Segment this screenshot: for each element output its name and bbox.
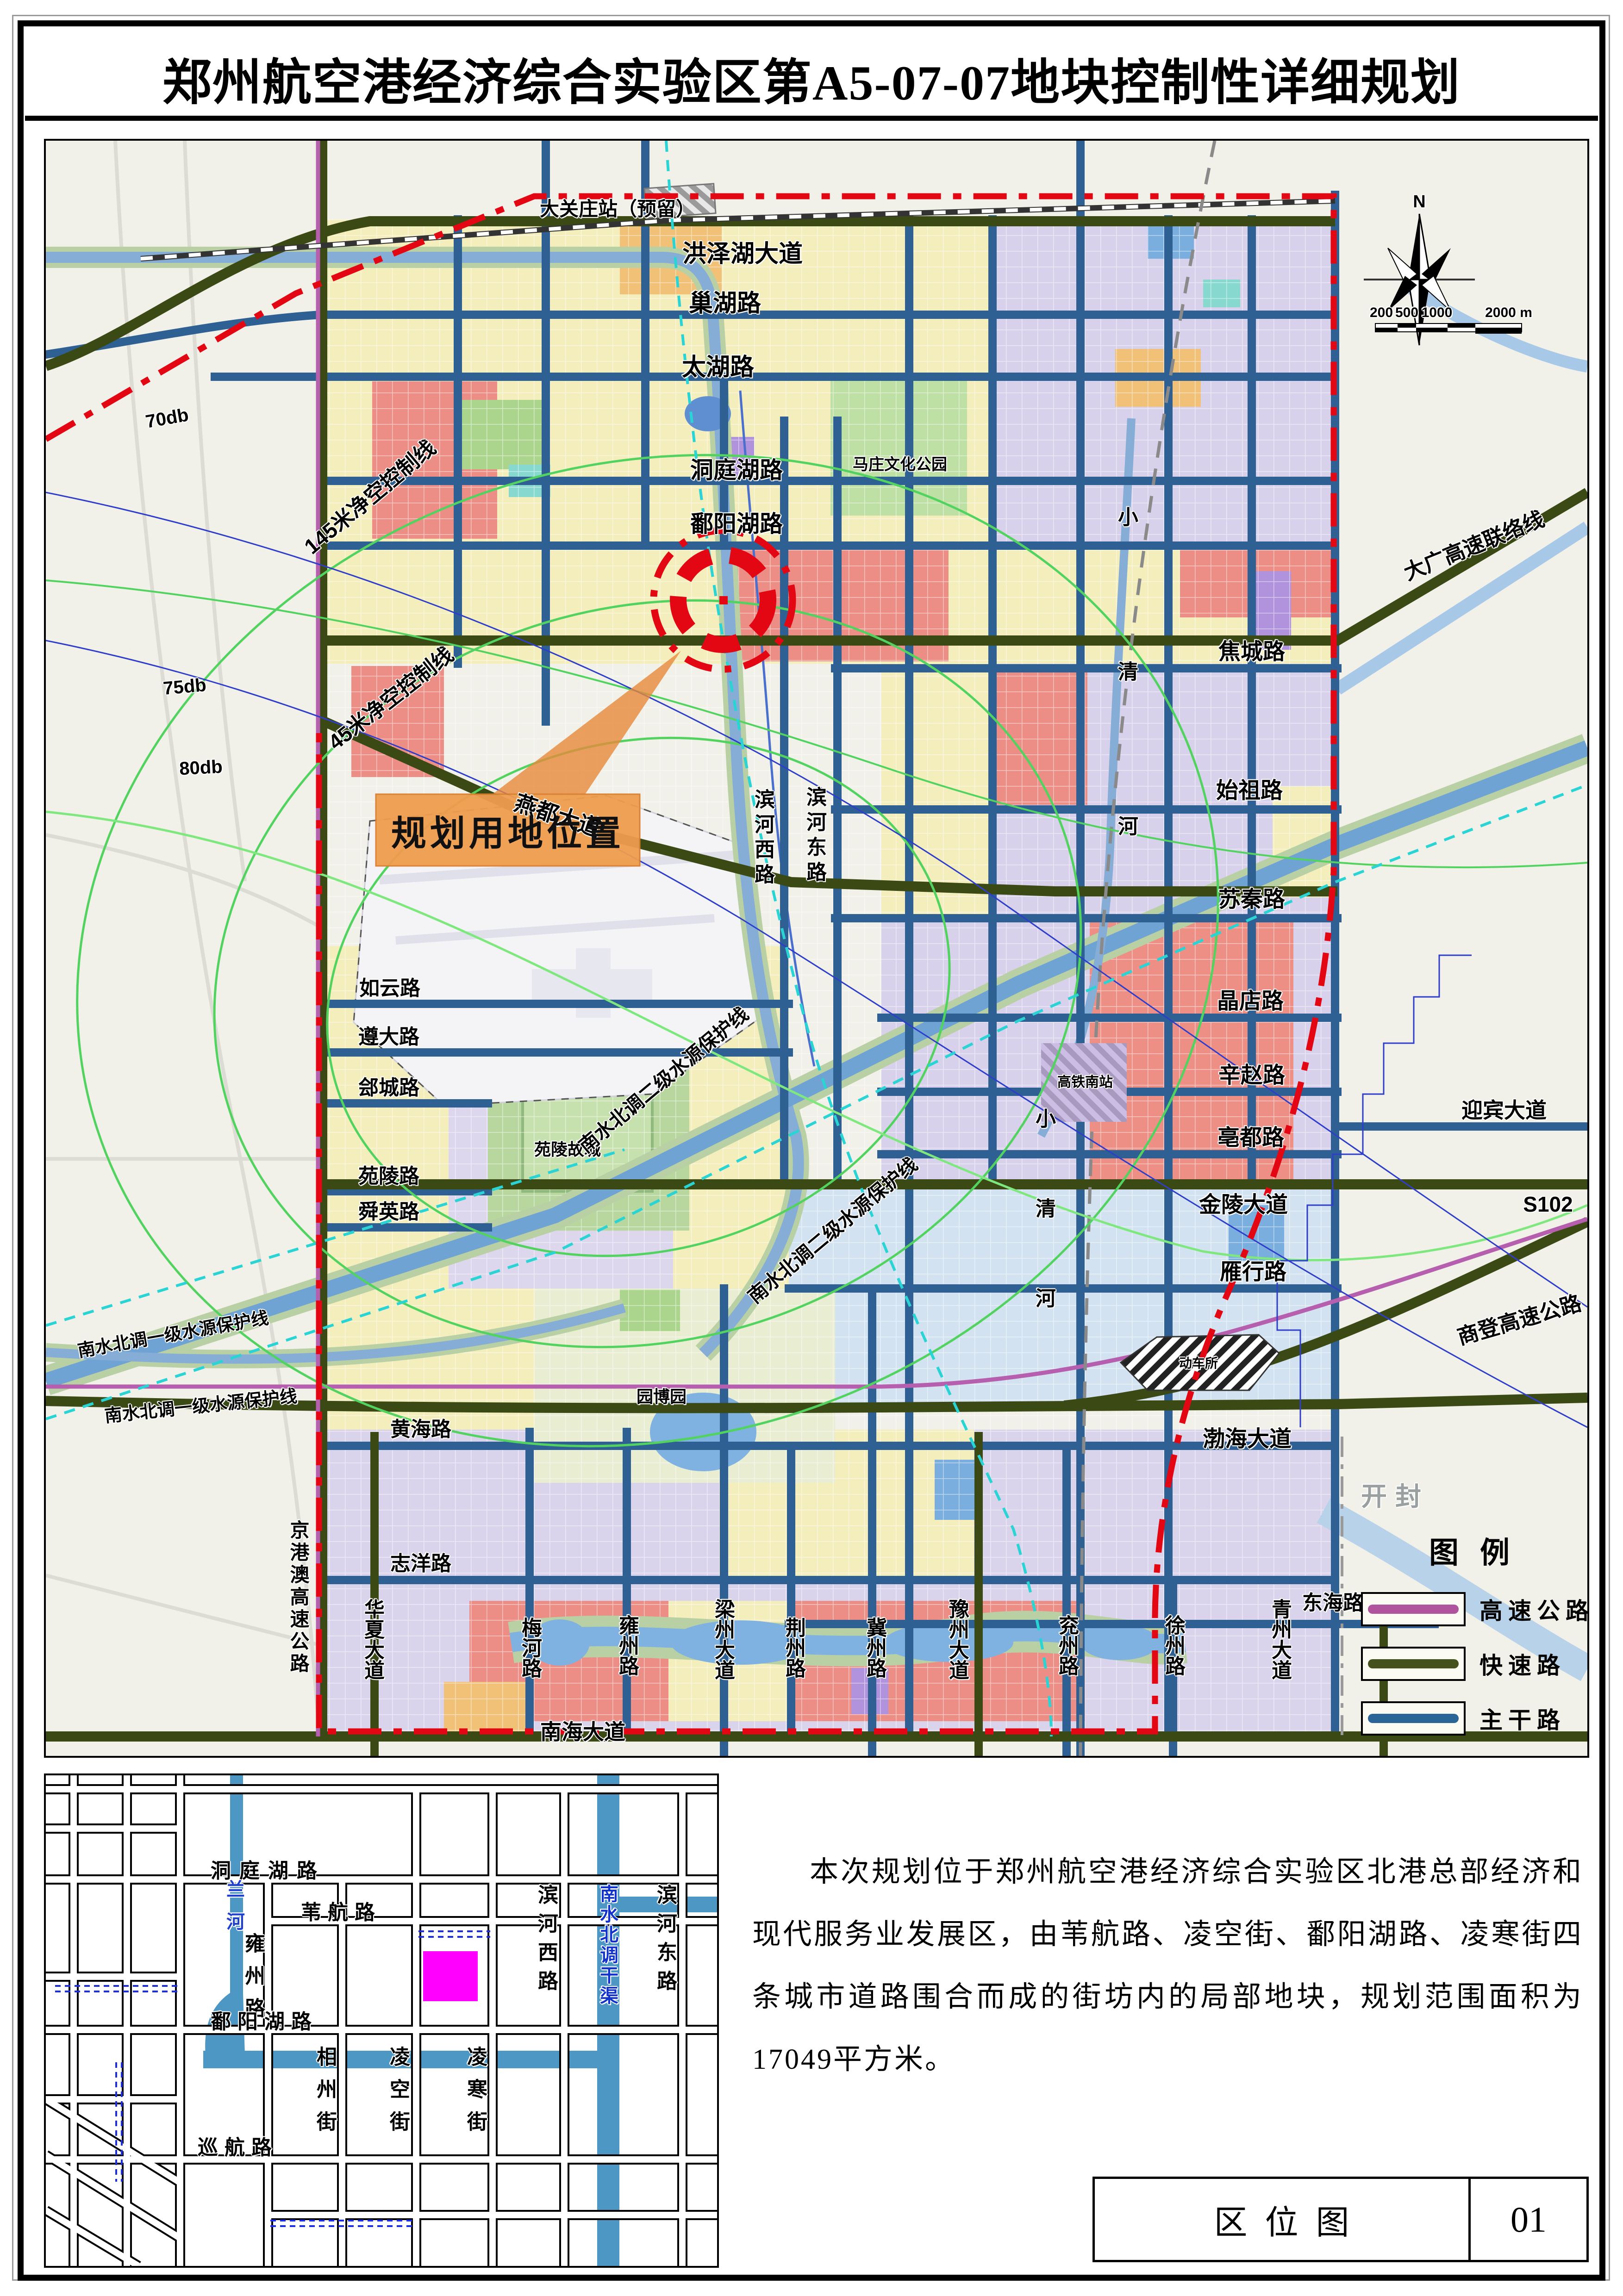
plan-description: 本次规划位于郑州航空港经济综合实验区北港总部经济和现代服务业发展区，由苇航路、凌… [752, 1841, 1583, 2091]
plot-detail-inset-map: 洞庭湖路兰河苇航路雍州路鄱阳湖路相州街凌空街凌寒街巡航路滨河西路南水北调干渠滨河… [44, 1773, 719, 2268]
sheet-name: 区位图 [1095, 2179, 1471, 2260]
legend-item: 高速公路 [1361, 1592, 1589, 1626]
legend-label: 主干路 [1479, 1702, 1566, 1735]
inset-map-graphic [46, 1775, 717, 2266]
reserved-station [644, 184, 716, 218]
master-plan-map-graphic [46, 141, 1587, 1756]
plot-a5-07-07 [423, 1951, 478, 2001]
legend-label: 快速路 [1479, 1647, 1566, 1680]
map-legend: 图例 高速公路快速路主干路 [1344, 1529, 1589, 1736]
title-divider [25, 116, 1598, 121]
sheet-number: 01 [1471, 2179, 1586, 2260]
callout-label: 规划用地位置 [391, 805, 624, 856]
legend-label: 高速公路 [1479, 1593, 1589, 1626]
legend-swatch [1361, 1701, 1466, 1736]
page-title: 郑州航空港经济综合实验区第A5-07-07地块控制性详细规划 [0, 43, 1623, 114]
legend-title: 图例 [1344, 1529, 1589, 1572]
scale-bar [1375, 324, 1522, 334]
sheet-title-block: 区位图 01 [1092, 2177, 1589, 2262]
legend-item: 主干路 [1361, 1701, 1589, 1736]
legend-item: 快速路 [1361, 1647, 1589, 1681]
hsr-south-station-hatch [1041, 1043, 1127, 1122]
legend-swatch [1361, 1647, 1466, 1681]
legend-swatch [1361, 1592, 1466, 1626]
location-map: 大关庄站（预留）洪泽湖大道巢湖路太湖路马庄文化公园洞庭湖路鄱阳湖路70db145… [44, 139, 1589, 1758]
